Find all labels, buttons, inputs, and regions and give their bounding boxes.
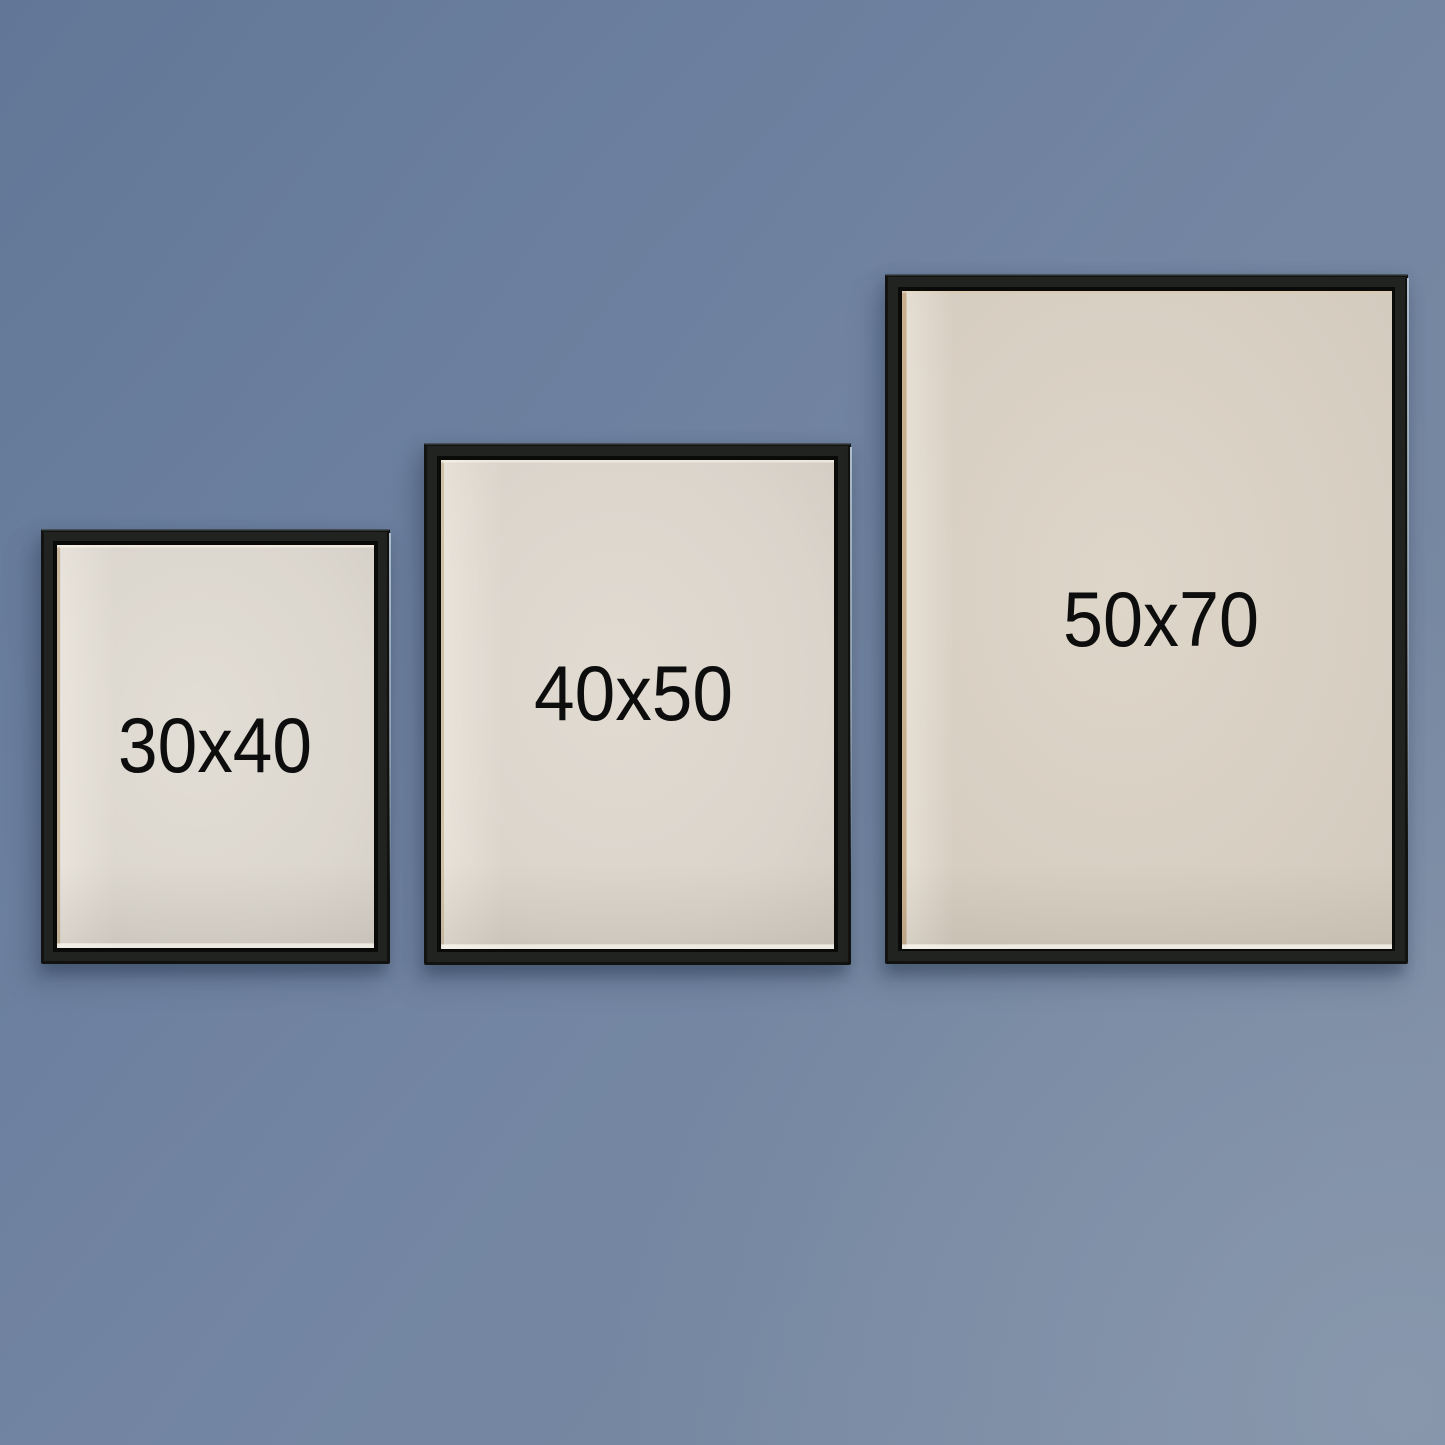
svg-text:30x40: 30x40 xyxy=(118,703,312,789)
svg-text:40x50: 40x50 xyxy=(534,651,733,737)
svg-text:50x70: 50x70 xyxy=(1063,577,1259,663)
